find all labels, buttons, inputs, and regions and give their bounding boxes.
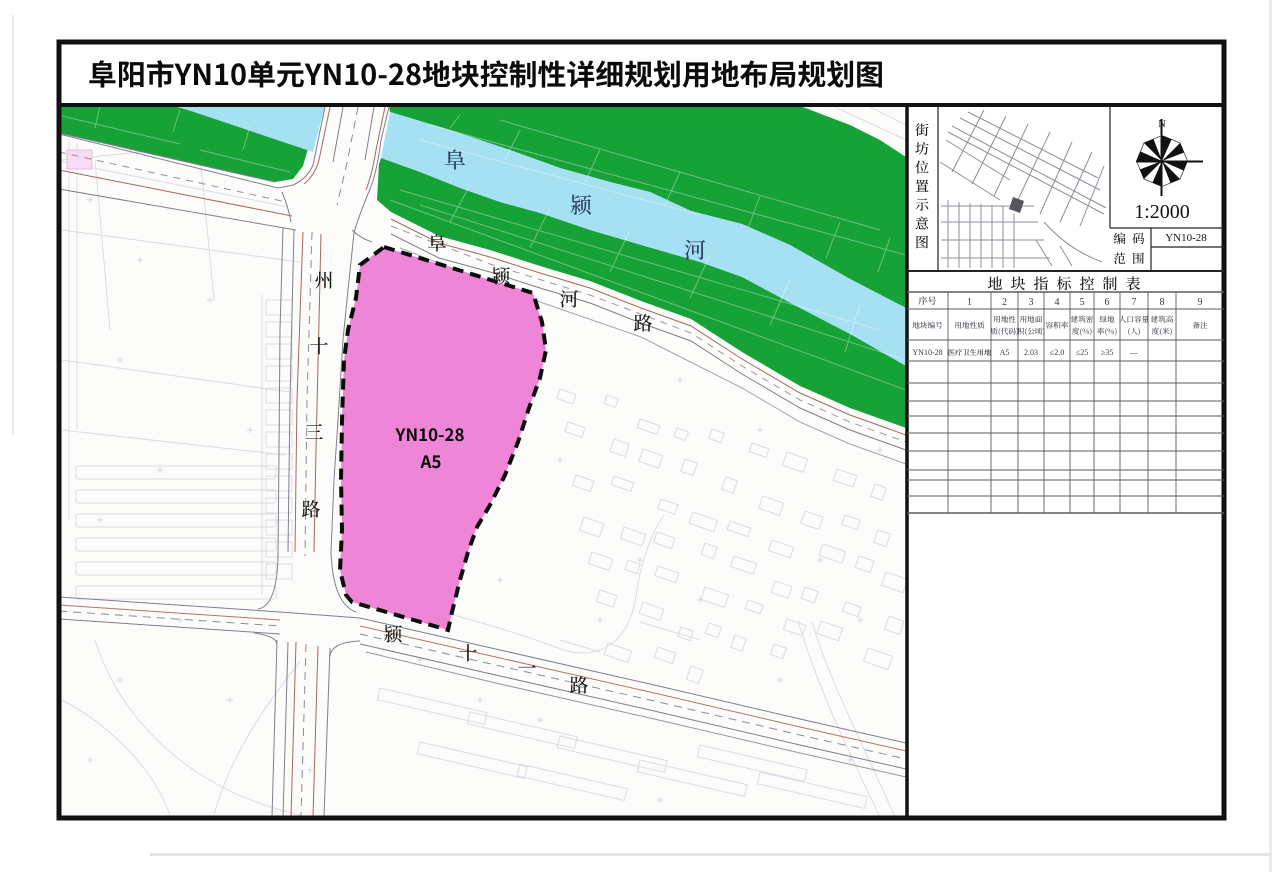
svg-text:YN10-28: YN10-28	[912, 348, 942, 357]
svg-text:N: N	[1158, 119, 1165, 130]
svg-text:≤2.0: ≤2.0	[1050, 348, 1064, 357]
svg-text:2: 2	[1002, 297, 1007, 308]
svg-text:4: 4	[1055, 297, 1060, 308]
svg-text:A5: A5	[1000, 348, 1010, 357]
svg-text:7: 7	[1132, 297, 1137, 308]
svg-text:9: 9	[1198, 297, 1203, 308]
svg-text:8: 8	[1160, 297, 1165, 308]
svg-text:3: 3	[1029, 297, 1034, 308]
svg-text:2.03: 2.03	[1024, 348, 1038, 357]
svg-text:5: 5	[1080, 297, 1085, 308]
svg-text:6: 6	[1105, 297, 1110, 308]
svg-text:≥35: ≥35	[1101, 348, 1113, 357]
svg-text:YN10-28: YN10-28	[1165, 232, 1207, 244]
svg-text:≤25: ≤25	[1076, 348, 1088, 357]
svg-text:1: 1	[967, 297, 972, 308]
svg-text:1:2000: 1:2000	[1134, 201, 1190, 223]
svg-text:—: —	[1129, 348, 1139, 357]
